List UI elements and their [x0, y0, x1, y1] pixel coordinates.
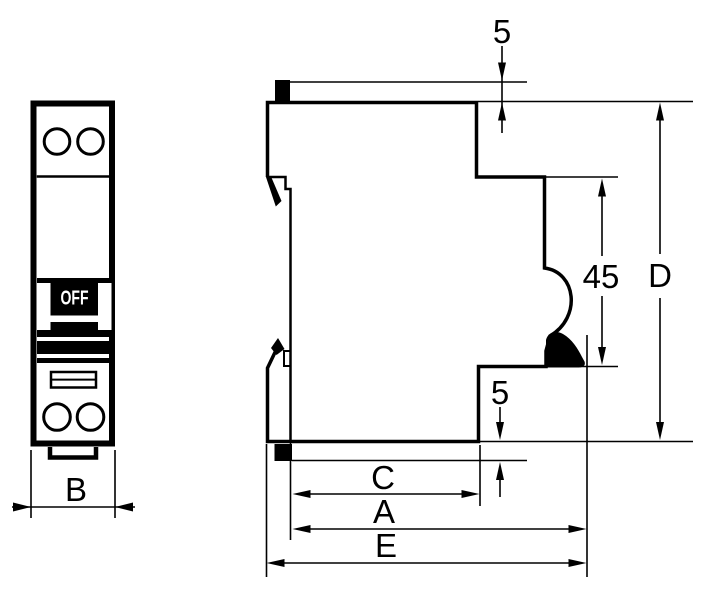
arrowhead-right: [462, 490, 480, 498]
dim-label-D: D: [648, 257, 672, 294]
arrowhead-right: [115, 503, 133, 512]
front-view: OFF B: [12, 104, 135, 519]
arrowhead-down: [498, 63, 506, 81]
toggle-slot-left: [37, 283, 51, 330]
terminal-screw-top-left: [44, 129, 70, 155]
arrowhead-right: [569, 525, 587, 533]
arrowhead-up: [496, 462, 504, 480]
arrowhead-left: [13, 503, 31, 512]
bottom-clip-square: [275, 444, 293, 461]
rail-hook: [546, 332, 585, 368]
dim-label-A: A: [373, 493, 395, 530]
dim-label-B: B: [65, 471, 87, 508]
switch-state-label: OFF: [61, 288, 89, 310]
arrowhead-left: [293, 525, 311, 533]
side-view: 5 45 D 5: [266, 13, 693, 577]
top-clip-spike: [266, 177, 282, 207]
arrowhead-left: [293, 490, 311, 498]
dim-label-45: 45: [583, 258, 620, 295]
front-stripe-3: [37, 358, 112, 363]
toggle-handle-groove: [51, 316, 99, 323]
mounting-tab: [50, 447, 96, 458]
drawing-canvas: OFF B: [0, 0, 714, 614]
toggle-slot-right: [98, 283, 112, 330]
top-clip-square: [275, 80, 290, 102]
arrowhead-down: [598, 347, 606, 365]
dim-label-bottom-5: 5: [491, 374, 509, 411]
front-stripe-1: [37, 330, 112, 337]
dimension-B: B: [12, 450, 135, 518]
terminal-screw-top-right: [78, 129, 104, 155]
arrowhead-up: [598, 179, 606, 197]
dimension-E: E: [267, 527, 587, 567]
side-body-outline: [268, 103, 572, 442]
terminal-screw-bottom-left: [44, 404, 71, 431]
dim-label-E: E: [375, 527, 397, 564]
dimension-top-5: 5: [493, 13, 511, 133]
arrowhead-up: [498, 103, 506, 121]
dim-label-C: C: [371, 459, 395, 496]
front-stripe-2: [37, 341, 112, 354]
dim-label-top-5: 5: [493, 13, 511, 50]
dimension-bottom-5: 5: [491, 374, 509, 497]
front-body-outline: [34, 104, 113, 444]
rail-slot-inner-face: [268, 177, 291, 443]
arrowhead-down: [656, 422, 664, 440]
arrowhead-down: [496, 422, 504, 440]
terminal-screw-bottom-right: [77, 404, 104, 431]
dimension-45: 45: [583, 179, 620, 366]
dimension-A: A: [293, 493, 587, 533]
arrowhead-right: [569, 559, 587, 567]
arrowhead-up: [656, 103, 664, 121]
arrowhead-left: [267, 559, 285, 567]
dimension-D: D: [648, 103, 672, 441]
breaker-dimension-drawing: OFF B: [0, 0, 714, 614]
